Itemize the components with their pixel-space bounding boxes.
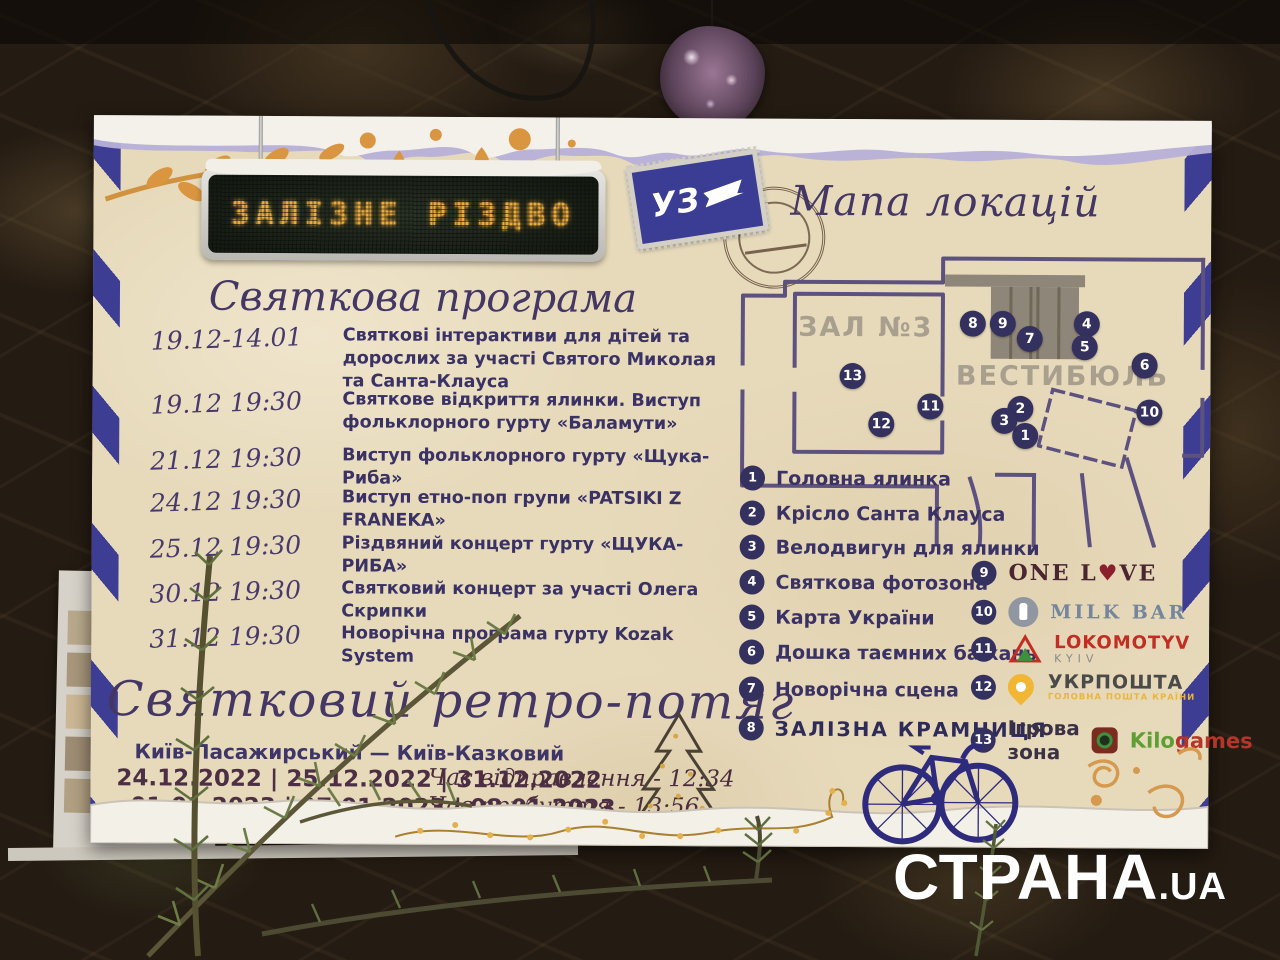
spruce-branches bbox=[0, 0, 1280, 960]
station-wall-photo: У bbox=[0, 0, 1280, 960]
strana-watermark: СТРАНА.UA bbox=[893, 840, 1227, 914]
